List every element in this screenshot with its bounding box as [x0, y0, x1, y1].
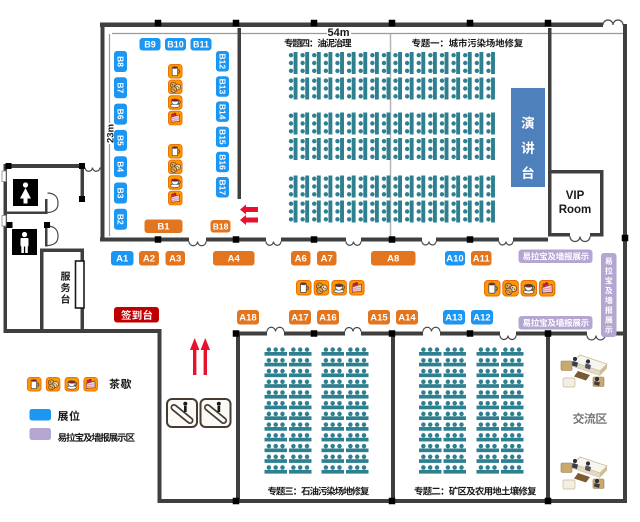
svg-text:B6: B6	[115, 109, 125, 120]
svg-text:B4: B4	[115, 161, 125, 172]
svg-text:A14: A14	[398, 313, 416, 324]
svg-text:A17: A17	[291, 313, 308, 324]
svg-text:B15: B15	[217, 129, 227, 145]
svg-text:A13: A13	[445, 313, 462, 324]
svg-text:A10: A10	[446, 254, 463, 265]
svg-text:A6: A6	[295, 254, 307, 265]
svg-text:B12: B12	[217, 53, 227, 69]
svg-text:B1: B1	[157, 222, 170, 233]
svg-text:VIP: VIP	[566, 190, 585, 202]
svg-text:B17: B17	[217, 179, 227, 195]
svg-text:B7: B7	[115, 82, 125, 93]
svg-text:54m: 54m	[327, 27, 349, 39]
svg-text:Room: Room	[559, 204, 592, 216]
svg-text:B11: B11	[193, 39, 209, 49]
svg-text:A7: A7	[321, 254, 333, 265]
svg-text:A1: A1	[116, 254, 129, 265]
svg-text:B18: B18	[213, 221, 229, 231]
svg-text:A11: A11	[473, 254, 491, 265]
svg-text:B13: B13	[217, 79, 227, 95]
svg-text:A3: A3	[169, 254, 181, 265]
svg-text:A18: A18	[239, 313, 256, 324]
svg-text:A4: A4	[228, 254, 241, 265]
svg-text:A2: A2	[143, 254, 155, 265]
svg-text:B8: B8	[115, 56, 125, 67]
svg-text:B16: B16	[217, 154, 227, 170]
svg-text:B5: B5	[115, 135, 125, 146]
svg-text:B14: B14	[217, 104, 227, 120]
svg-text:B9: B9	[144, 39, 156, 49]
svg-text:B2: B2	[115, 214, 125, 225]
svg-text:A15: A15	[370, 313, 388, 324]
svg-text:B10: B10	[167, 39, 184, 49]
svg-text:A12: A12	[473, 313, 490, 324]
svg-text:A16: A16	[319, 313, 336, 324]
svg-text:A8: A8	[387, 254, 399, 265]
svg-text:B3: B3	[115, 188, 125, 199]
